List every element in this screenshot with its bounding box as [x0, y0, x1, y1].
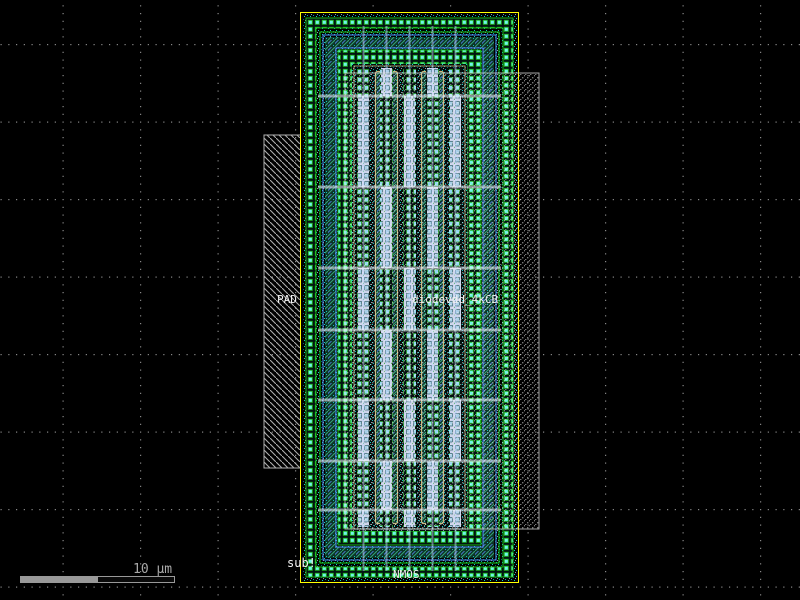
scale-bar-open-segment — [98, 577, 175, 583]
cell-name-label: diodevdd_4kCB — [412, 293, 498, 306]
layout-canvas[interactable]: PAD diodevdd_4kCB sub! NMOS 10 µm — [0, 0, 800, 600]
pad-label: PAD — [277, 293, 297, 306]
device-label: NMOS — [393, 568, 420, 581]
substrate-label: sub! — [287, 556, 316, 570]
scale-bar-label: 10 µm — [133, 562, 172, 577]
scale-bar-filled-segment — [20, 576, 97, 583]
